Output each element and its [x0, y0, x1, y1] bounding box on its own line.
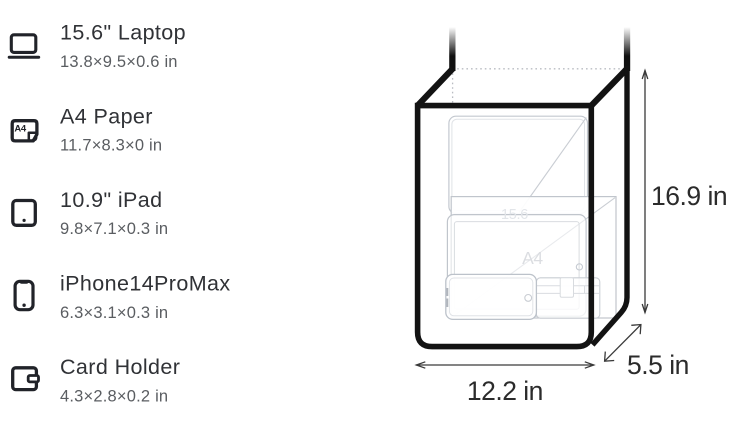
svg-text:16.9 in: 16.9 in [651, 181, 727, 211]
svg-text:6.3×3.1×0.3 in: 6.3×3.1×0.3 in [60, 304, 168, 322]
svg-text:15.6: 15.6 [501, 207, 528, 223]
svg-text:9.8×7.1×0.3 in: 9.8×7.1×0.3 in [60, 220, 168, 238]
svg-text:4.3×2.8×0.2 in: 4.3×2.8×0.2 in [60, 387, 168, 405]
svg-text:5.5 in: 5.5 in [627, 350, 689, 380]
svg-text:10.9" iPad: 10.9" iPad [60, 188, 162, 212]
svg-text:12.2 in: 12.2 in [467, 376, 543, 406]
svg-text:15.6" Laptop: 15.6" Laptop [60, 21, 186, 45]
svg-text:11.7×8.3×0 in: 11.7×8.3×0 in [60, 137, 162, 155]
svg-text:A4: A4 [14, 123, 26, 134]
svg-text:13.8×9.5×0.6 in: 13.8×9.5×0.6 in [60, 53, 178, 71]
svg-text:Card Holder: Card Holder [60, 355, 180, 379]
svg-text:iPhone14ProMax: iPhone14ProMax [60, 272, 231, 296]
svg-text:A4 Paper: A4 Paper [60, 104, 153, 128]
